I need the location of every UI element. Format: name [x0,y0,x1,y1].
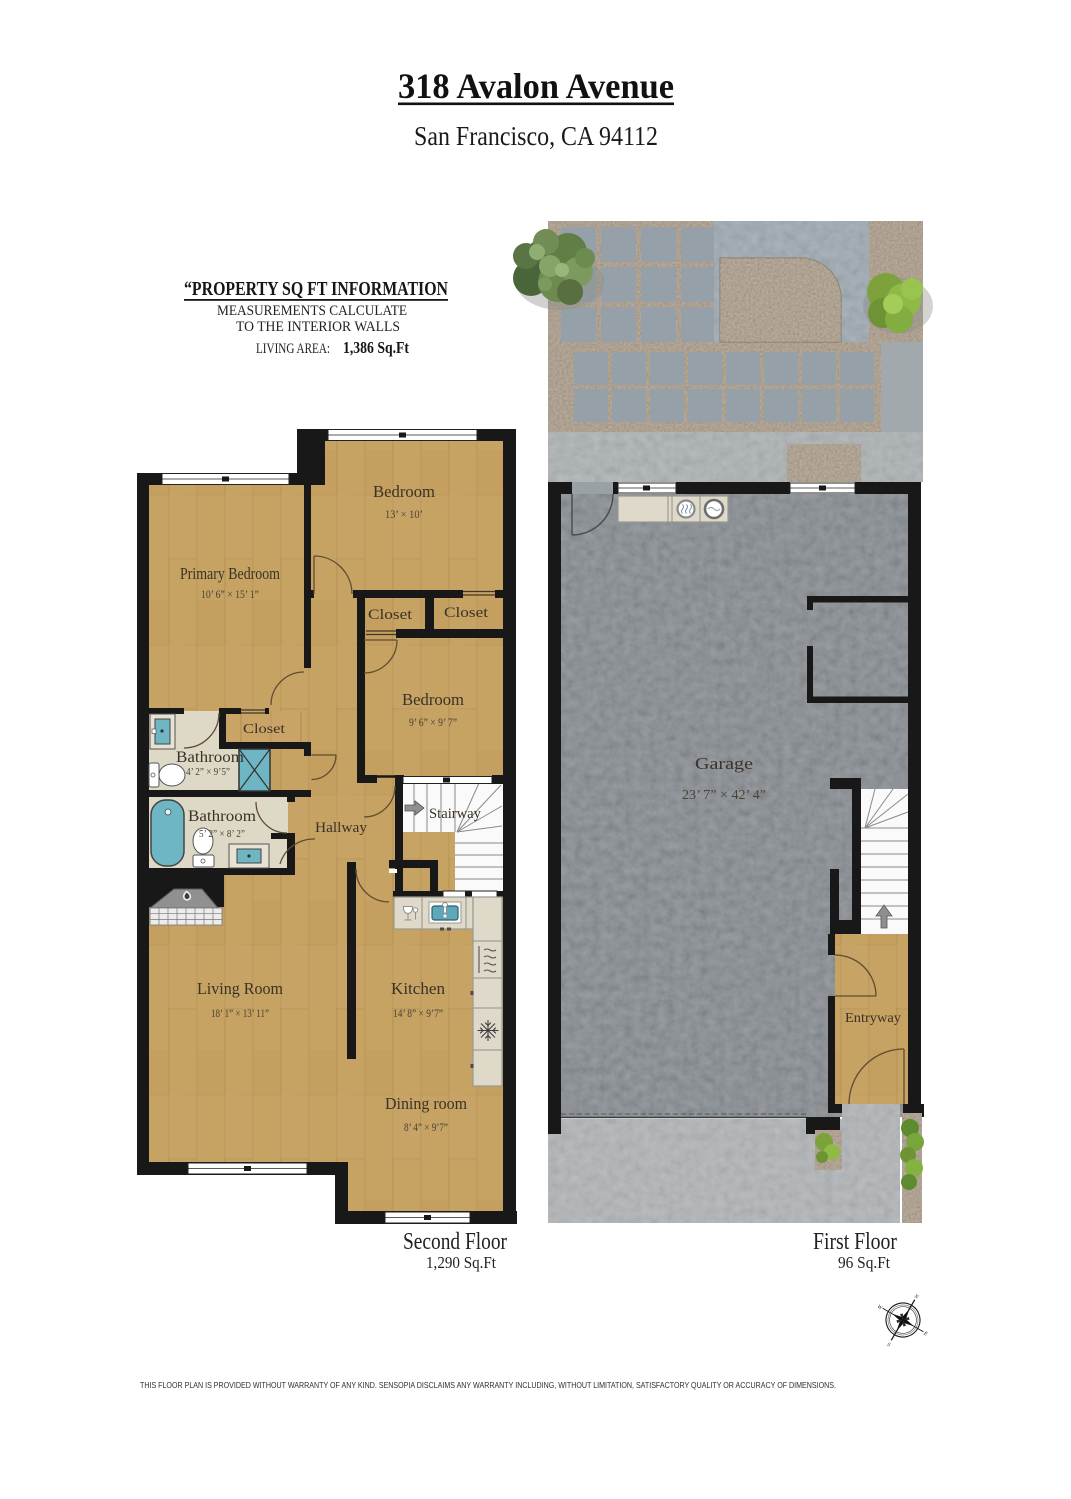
svg-text:Bathroom: Bathroom [188,808,256,825]
svg-text:1,386 Sq.Ft: 1,386 Sq.Ft [343,338,409,357]
svg-text:Hallway: Hallway [315,820,367,836]
svg-text:Kitchen: Kitchen [391,979,445,998]
svg-text:Primary Bedroom: Primary Bedroom [180,564,280,583]
svg-text:13’ × 10’: 13’ × 10’ [385,509,423,521]
svg-text:THIS FLOOR PLAN IS PROVIDED WI: THIS FLOOR PLAN IS PROVIDED WITHOUT WARR… [140,1380,836,1390]
svg-text:TO THE INTERIOR WALLS: TO THE INTERIOR WALLS [236,319,400,335]
svg-text:“PROPERTY SQ FT INFORMATION: “PROPERTY SQ FT INFORMATION [184,278,448,300]
svg-text:8’ 4” × 9’7”: 8’ 4” × 9’7” [404,1122,448,1134]
svg-text:18’ 1” × 13’ 11”: 18’ 1” × 13’ 11” [211,1008,269,1020]
svg-text:Dining room: Dining room [385,1094,467,1113]
svg-text:5’ 2” × 8’ 2”: 5’ 2” × 8’ 2” [199,829,245,840]
svg-text:First Floor: First Floor [813,1229,897,1255]
svg-text:LIVING AREA:: LIVING AREA: [256,341,330,357]
svg-text:10’ 6” × 15’ 1”: 10’ 6” × 15’ 1” [201,589,259,601]
svg-text:23’ 7” × 42’ 4”: 23’ 7” × 42’ 4” [682,787,766,802]
svg-text:Entryway: Entryway [845,1010,901,1025]
svg-text:Closet: Closet [368,607,412,623]
svg-text:96 Sq.Ft: 96 Sq.Ft [838,1253,890,1272]
svg-text:Bedroom: Bedroom [402,690,464,709]
svg-text:Second Floor: Second Floor [403,1229,507,1255]
svg-text:Living Room: Living Room [197,979,283,998]
svg-text:Garage: Garage [695,754,753,773]
svg-text:MEASUREMENTS CALCULATE: MEASUREMENTS CALCULATE [217,303,407,319]
svg-text:Closet: Closet [243,722,285,737]
svg-text:Stairway: Stairway [429,806,481,822]
svg-text:1,290 Sq.Ft: 1,290 Sq.Ft [426,1253,496,1272]
svg-text:318 Avalon Avenue: 318 Avalon Avenue [398,66,674,106]
svg-text:9’ 6” × 9’ 7”: 9’ 6” × 9’ 7” [409,717,457,729]
svg-text:Bathroom: Bathroom [176,749,244,766]
svg-text:4’ 2” × 9’5”: 4’ 2” × 9’5” [186,767,230,778]
svg-text:San Francisco, CA 94112: San Francisco, CA 94112 [414,121,658,151]
svg-text:14’ 8” × 9’7”: 14’ 8” × 9’7” [393,1008,443,1020]
svg-text:Bedroom: Bedroom [373,482,435,501]
svg-text:Closet: Closet [444,605,488,621]
